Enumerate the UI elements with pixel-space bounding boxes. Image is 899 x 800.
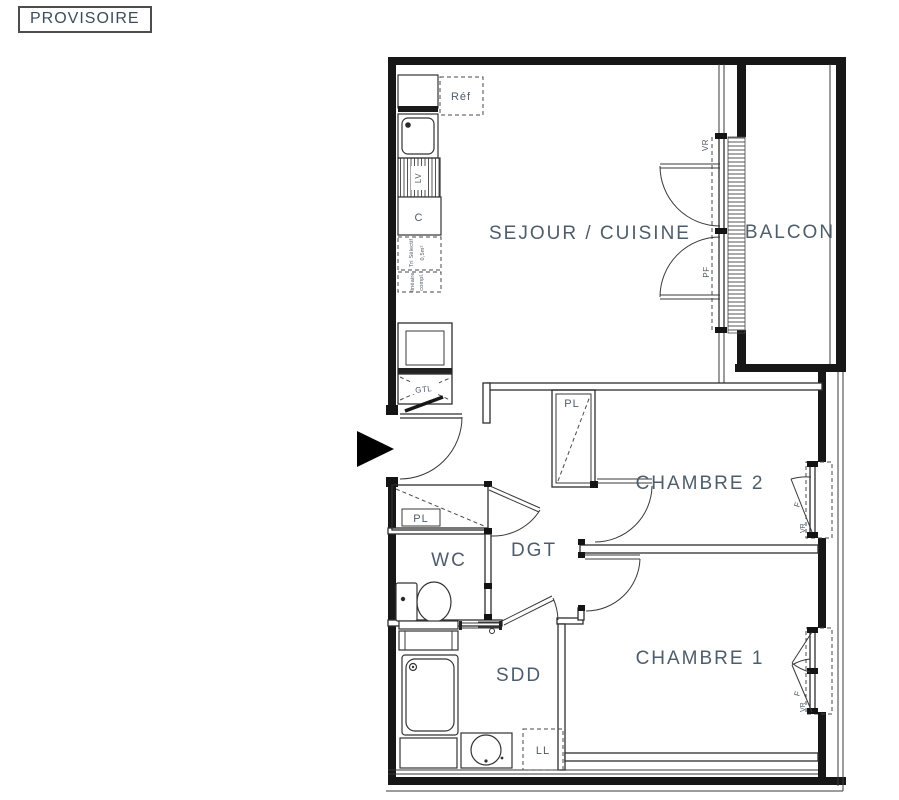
sdd-label: SDD (496, 665, 542, 686)
vr-chambre2-label: VR (800, 523, 807, 533)
technical-duct: GTL (398, 323, 452, 411)
wc-label: WC (431, 550, 467, 571)
sdd-fixtures: LL (399, 621, 563, 770)
cooker-label: C (415, 212, 424, 224)
sejour-cuisine-label: SEJOUR / CUISINE (489, 223, 691, 244)
dishwasher-label: LV (414, 173, 423, 183)
kitchen-counter: Réf LV C Tri Sélectif 0,5m² (398, 75, 483, 292)
entrance-arrow-icon (357, 431, 394, 467)
fenetre-chambre1-label: F (793, 690, 803, 698)
fenetre-chambre2-label: F (793, 501, 803, 509)
lave-linge-label: LL (536, 745, 550, 757)
svg-text:linéaire: linéaire (410, 272, 416, 291)
chambre1-window: F VR (792, 627, 832, 714)
washing-machine-box: LL (523, 729, 563, 770)
gtl-box: GTL (398, 374, 452, 411)
closet-wc: PL (392, 485, 488, 530)
lineaire-box: linéaire compl. (398, 272, 441, 292)
vr-sejour-label: VR (701, 139, 710, 151)
chambre2-label: CHAMBRE 2 (636, 473, 765, 494)
chambre1-door (578, 552, 640, 611)
floor-plan-page: PROVISOIRE (0, 0, 899, 800)
svg-text:Tri Sélectif: Tri Sélectif (409, 239, 415, 267)
sdd-shelf (399, 621, 458, 629)
svg-text:compl.: compl. (419, 273, 425, 291)
sdd-cabinet (400, 738, 457, 768)
floor-plan-drawing: Réf LV C Tri Sélectif 0,5m² (0, 0, 899, 800)
balcon-label: BALCON (745, 222, 835, 243)
toilet (396, 582, 451, 622)
svg-text:0,5m²: 0,5m² (420, 245, 426, 260)
chambre1-label: CHAMBRE 1 (636, 648, 765, 669)
tri-selectif-box: Tri Sélectif 0,5m² (398, 237, 441, 270)
placard-chambre2-label: PL (564, 398, 579, 410)
shower-tray (402, 655, 458, 735)
cooktop-strip (398, 106, 438, 112)
washbasin (461, 733, 512, 768)
refrigerator-label: Réf (451, 91, 471, 103)
gtl-label: GTL (415, 384, 433, 395)
pf-label: PF (702, 266, 711, 277)
dgt-label: DGT (511, 540, 557, 561)
entry-door (357, 405, 462, 487)
placard-wc-label: PL (413, 513, 428, 525)
closet-chambre2: PL (552, 390, 595, 487)
chambre2-window: F VR (791, 461, 832, 538)
vr-chambre1-label: VR (800, 702, 807, 712)
balcony-threshold (728, 137, 745, 333)
kitchen-sink (398, 114, 438, 158)
provisoire-stamp: PROVISOIRE (18, 6, 152, 33)
dishwasher-box: LV (398, 158, 440, 197)
